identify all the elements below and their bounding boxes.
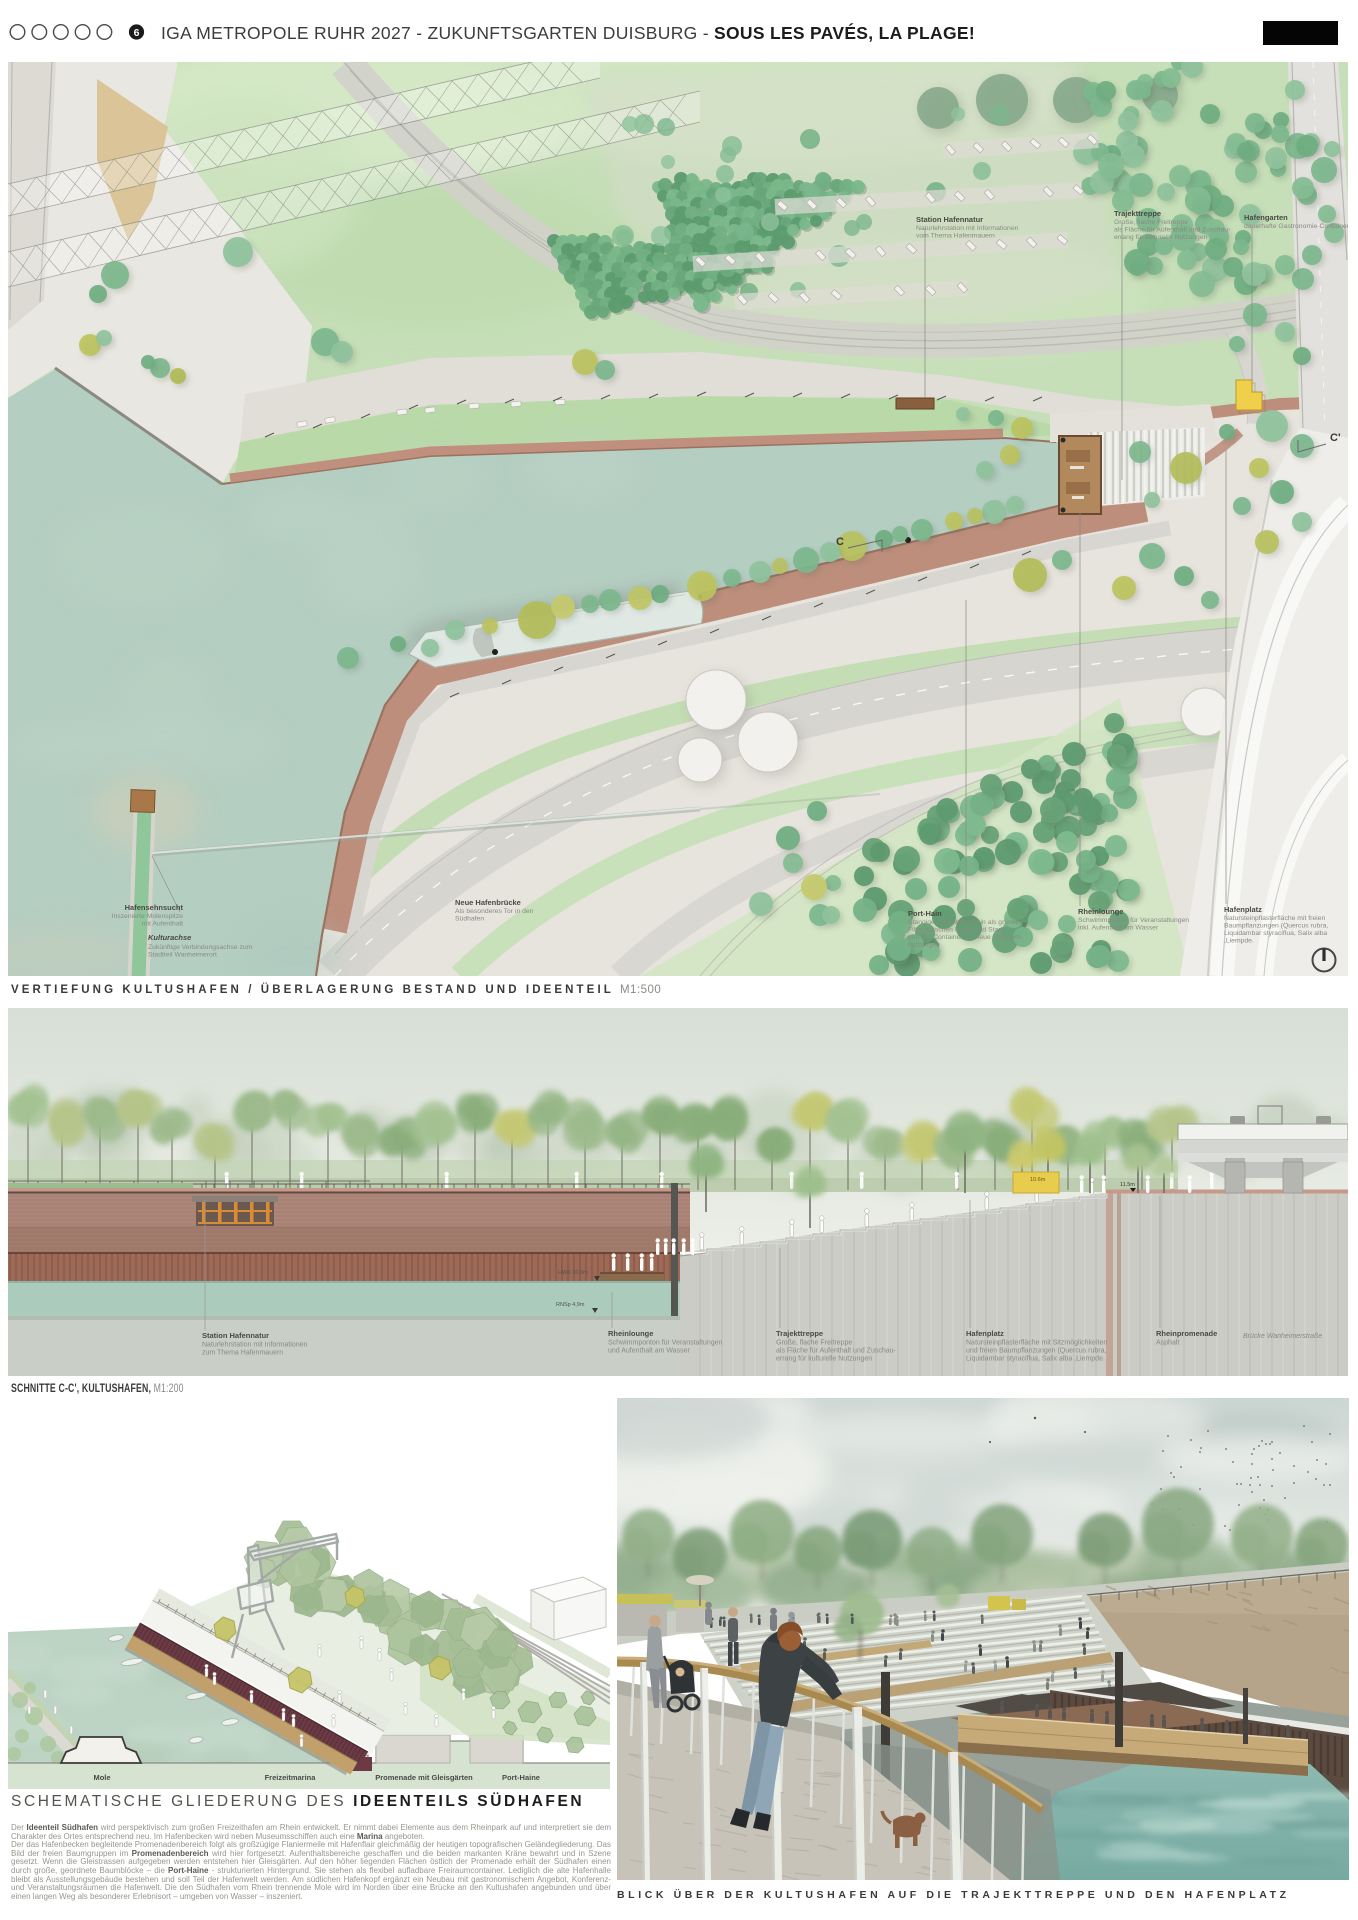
svg-text:inkl. Aufenthalt am Wasser: inkl. Aufenthalt am Wasser bbox=[1078, 925, 1159, 932]
svg-text:mit Aufenthalt: mit Aufenthalt bbox=[142, 921, 183, 928]
svg-text:HWS 10,9m: HWS 10,9m bbox=[558, 1270, 588, 1276]
svg-text:Hafengarten: Hafengarten bbox=[1244, 213, 1288, 222]
svg-text:nutzungen: nutzungen bbox=[908, 942, 940, 949]
svg-text:Neue Hafenbrücke: Neue Hafenbrücke bbox=[455, 898, 521, 907]
svg-text:Station Hafennatur: Station Hafennatur bbox=[916, 215, 983, 224]
svg-text:Südhafen: Südhafen bbox=[455, 916, 484, 923]
svg-text:Rheinlounge: Rheinlounge bbox=[608, 1329, 653, 1338]
svg-text:,Liempde.: ,Liempde. bbox=[1224, 938, 1254, 945]
svg-text:und Aufenthalt am Wasser: und Aufenthalt am Wasser bbox=[608, 1348, 691, 1355]
svg-text:Trajekttreppe: Trajekttreppe bbox=[1114, 209, 1161, 218]
svg-text:6: 6 bbox=[134, 27, 140, 39]
svg-text:Filter zwischen Hafen und Stad: Filter zwischen Hafen und Stadt bbox=[908, 927, 1004, 934]
svg-text:Liquidambar styraciflua, Salix: Liquidambar styraciflua, Salix alba bbox=[1224, 930, 1327, 937]
svg-text:10.6m: 10.6m bbox=[1030, 1177, 1046, 1183]
svg-text:Asphalt: Asphalt bbox=[1156, 1340, 1179, 1347]
svg-text:Hafenplatz: Hafenplatz bbox=[1224, 905, 1262, 914]
svg-text:als Fläche für Aufenthalt und: als Fläche für Aufenthalt und Zuschau- bbox=[1114, 227, 1230, 234]
svg-text:Baumpflanzungen (Quercus rubra: Baumpflanzungen (Quercus rubra, bbox=[1224, 923, 1328, 930]
svg-text:Natursteinpflasterfläche mit f: Natursteinpflasterfläche mit freien bbox=[1224, 915, 1325, 922]
svg-text:Naturlehrstation mit Informati: Naturlehrstation mit Informationen bbox=[916, 225, 1019, 232]
svg-text:Große, flache Freitreppe: Große, flache Freitreppe bbox=[776, 1340, 852, 1347]
svg-text:Freizeitmarina: Freizeitmarina bbox=[265, 1773, 317, 1782]
svg-text:C': C' bbox=[1330, 432, 1341, 444]
svg-text:Promenade mit Gleisgärten: Promenade mit Gleisgärten bbox=[375, 1773, 473, 1782]
svg-text:Zukünftige Verbindungsachse zu: Zukünftige Verbindungsachse zum bbox=[148, 944, 253, 951]
svg-text:Brücke Wanheimerstraße: Brücke Wanheimerstraße bbox=[1243, 1333, 1322, 1340]
svg-text:Natursteinpflasterfläche mit S: Natursteinpflasterfläche mit Sitzmöglich… bbox=[966, 1340, 1107, 1347]
svg-text:Liquidambar styraciflua, Salix: Liquidambar styraciflua, Salix alba ,Lie… bbox=[966, 1356, 1105, 1363]
svg-text:Rheinpromenade: Rheinpromenade bbox=[1156, 1329, 1217, 1338]
svg-text:Stadtteil Wanheimerort: Stadtteil Wanheimerort bbox=[148, 952, 217, 959]
svg-text:Schwimmponton für Veranstaltun: Schwimmponton für Veranstaltungen bbox=[1078, 917, 1189, 924]
svg-text:zum Thema Hafenmauern: zum Thema Hafenmauern bbox=[202, 1350, 283, 1357]
svg-text:Kulturachse: Kulturachse bbox=[148, 933, 191, 942]
svg-text:Stangiger Klimabaumhain als gr: Stangiger Klimabaumhain als grüner bbox=[908, 919, 1019, 926]
svg-text:11.5m: 11.5m bbox=[1120, 1182, 1135, 1188]
svg-text:als Fläche für Aufenthalt und: als Fläche für Aufenthalt und Zuschau- bbox=[776, 1348, 897, 1355]
svg-text:errang für kulturelle Nutzunge: errang für kulturelle Nutzungen bbox=[776, 1356, 872, 1363]
svg-text:Station Hafennatur: Station Hafennatur bbox=[202, 1331, 269, 1340]
svg-text:errang für kulturelle Nutzunge: errang für kulturelle Nutzungen bbox=[1114, 234, 1208, 241]
svg-text:Schwimmponton für Veranstaltun: Schwimmponton für Veranstaltungen bbox=[608, 1340, 723, 1347]
svg-text:vom Thema Hafenmauern: vom Thema Hafenmauern bbox=[916, 233, 995, 240]
svg-text:Naturlehrstation mit Informati: Naturlehrstation mit Informationen bbox=[202, 1342, 308, 1349]
svg-text:C: C bbox=[836, 536, 844, 548]
svg-text:und als 'Container' für neue F: und als 'Container' für neue Freiraum- bbox=[908, 934, 1022, 941]
svg-text:Trajekttreppe: Trajekttreppe bbox=[776, 1329, 823, 1338]
svg-text:Als besonderes Tor in den: Als besonderes Tor in den bbox=[455, 908, 534, 915]
svg-text:Port-Hain: Port-Hain bbox=[908, 909, 942, 918]
svg-text:Große, flache Freitreppe: Große, flache Freitreppe bbox=[1114, 219, 1188, 226]
svg-text:Rheinlounge: Rheinlounge bbox=[1078, 907, 1123, 916]
svg-text:dauerhafte Gastronomie-Contain: dauerhafte Gastronomie-Container bbox=[1244, 223, 1348, 230]
svg-text:Port-Haine: Port-Haine bbox=[502, 1773, 540, 1782]
svg-text:und freien Baumpflanzungen (Qu: und freien Baumpflanzungen (Quercus rubr… bbox=[966, 1348, 1107, 1355]
svg-text:Mole: Mole bbox=[93, 1773, 110, 1782]
svg-text:Hafenplatz: Hafenplatz bbox=[966, 1329, 1004, 1338]
svg-text:Inszenierte Molenspitze: Inszenierte Molenspitze bbox=[112, 913, 184, 920]
svg-text:RNSp 4,9m: RNSp 4,9m bbox=[556, 1302, 585, 1308]
svg-text:Hafensehnsucht: Hafensehnsucht bbox=[125, 903, 184, 912]
